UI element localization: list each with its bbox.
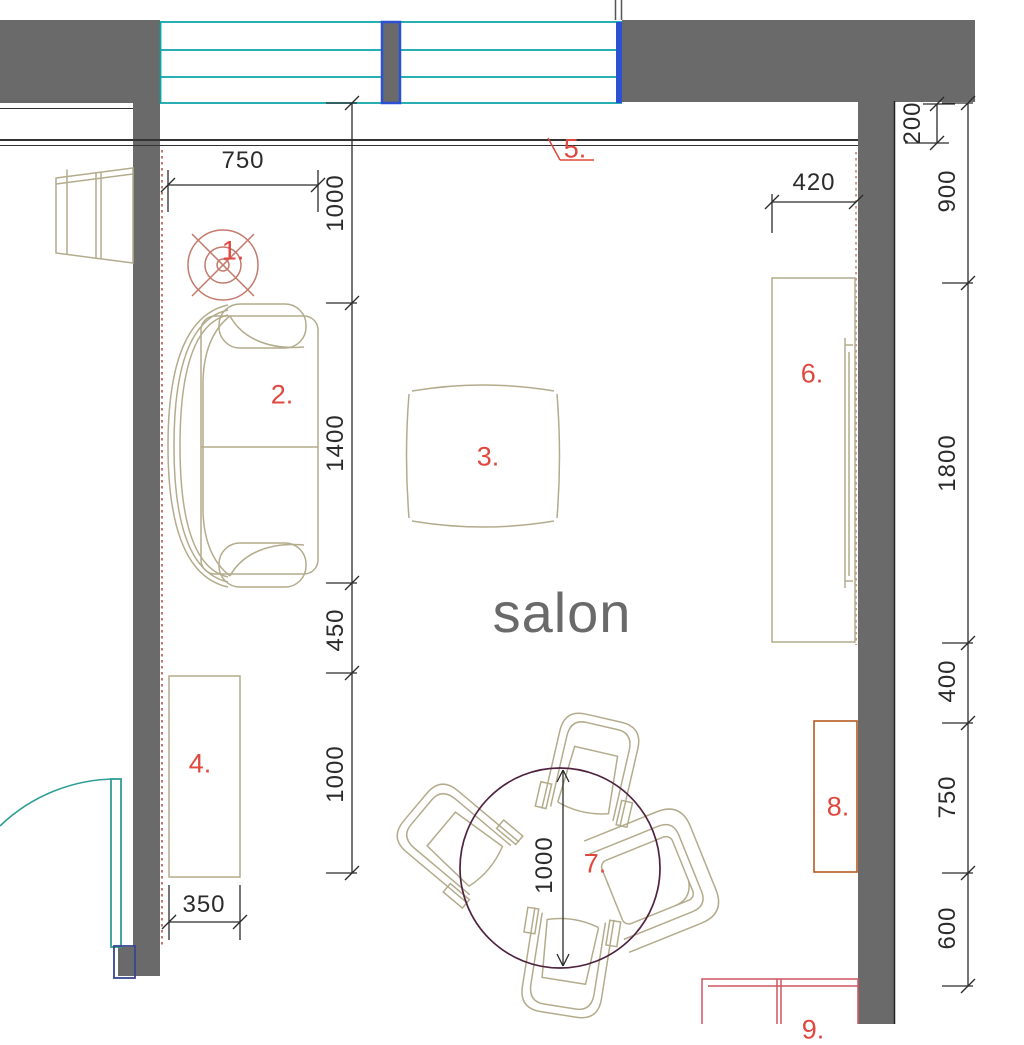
furniture-label-3: 3. bbox=[477, 444, 500, 471]
dim-text-750-right: 750 bbox=[936, 775, 960, 818]
dim-420 bbox=[765, 194, 863, 233]
window-end-frame bbox=[616, 22, 622, 103]
dim-text-420: 420 bbox=[792, 171, 835, 195]
furniture-label-9: 9. bbox=[802, 1017, 825, 1044]
dim-text-200: 200 bbox=[901, 101, 925, 144]
furniture-label-8: 8. bbox=[827, 794, 850, 821]
furniture-label-2: 2. bbox=[271, 382, 294, 409]
window-mullion bbox=[382, 22, 400, 103]
furniture-label-4: 4. bbox=[189, 751, 212, 778]
dim-text-400: 400 bbox=[936, 659, 960, 702]
furniture-label-7: 7. bbox=[584, 851, 607, 878]
dim-text-750-top: 750 bbox=[221, 149, 264, 173]
dim-right-chain bbox=[942, 96, 975, 993]
dim-text-600: 600 bbox=[936, 906, 960, 949]
beam-lines bbox=[0, 109, 858, 146]
dim-text-1800: 1800 bbox=[936, 434, 960, 491]
chair-left bbox=[385, 771, 524, 909]
floor-plan-drawing bbox=[0, 0, 1024, 1024]
door bbox=[0, 779, 135, 978]
room-title: salon bbox=[493, 585, 632, 641]
dim-text-1000b-left: 1000 bbox=[324, 745, 348, 802]
furniture-label-6: 6. bbox=[801, 361, 824, 388]
cabinet-top-left bbox=[56, 168, 133, 263]
tv-unit bbox=[772, 278, 855, 642]
dim-text-900: 900 bbox=[936, 169, 960, 212]
dim-text-450-left: 450 bbox=[324, 608, 348, 651]
sideboard-bottom-pink bbox=[702, 979, 858, 1024]
dim-text-1400-left: 1400 bbox=[324, 414, 348, 471]
dim-top-750 bbox=[161, 170, 325, 212]
floor-plan-page: { "room_label": "salon", "labels": { "1"… bbox=[0, 0, 1024, 1024]
furniture-beige bbox=[56, 168, 855, 1022]
furniture-label-1: 1. bbox=[222, 238, 245, 265]
wall-edge-lines-top bbox=[616, 0, 622, 20]
furniture-label-5: 5. bbox=[564, 136, 587, 163]
chair-bottom bbox=[512, 906, 621, 1021]
sofa bbox=[168, 304, 318, 587]
dim-text-table-1000: 1000 bbox=[533, 836, 557, 893]
dim-text-350: 350 bbox=[182, 893, 225, 917]
dim-text-1000-left: 1000 bbox=[324, 174, 348, 231]
door-leaf bbox=[111, 779, 121, 947]
